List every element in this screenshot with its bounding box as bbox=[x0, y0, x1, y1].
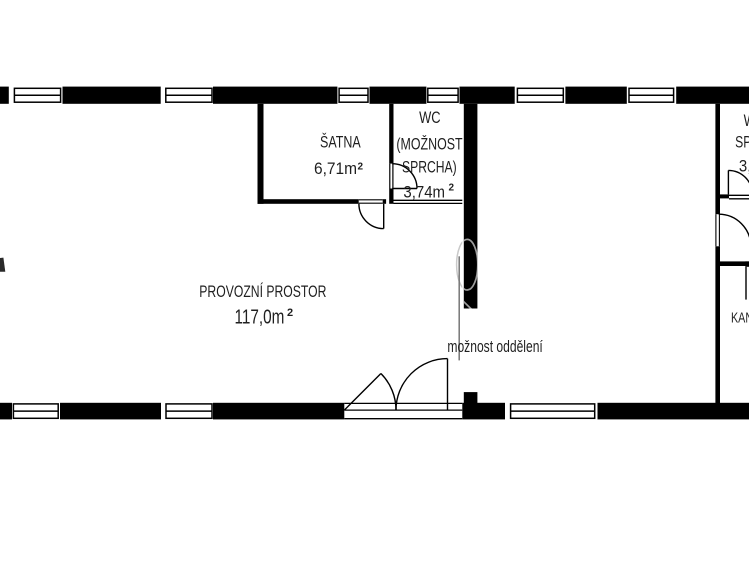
svg-text:117,0m: 117,0m bbox=[235, 305, 285, 328]
svg-text:6,71m: 6,71m bbox=[314, 160, 357, 178]
svg-text:SPRCHA): SPRCHA) bbox=[402, 157, 457, 176]
svg-text:WC: WC bbox=[744, 111, 749, 130]
svg-text:3,74m: 3,74m bbox=[403, 184, 445, 202]
svg-text:WC: WC bbox=[419, 108, 441, 127]
svg-text:PROVOZNÍ PROSTOR: PROVOZNÍ PROSTOR bbox=[199, 282, 326, 301]
svg-text:možnost oddělení: možnost oddělení bbox=[447, 337, 543, 356]
svg-text:SPRCHA: SPRCHA bbox=[735, 132, 749, 151]
svg-text:2: 2 bbox=[449, 182, 455, 193]
svg-text:KANCELÁŘ: KANCELÁŘ bbox=[731, 309, 749, 326]
svg-text:ŠATNA: ŠATNA bbox=[320, 133, 361, 152]
svg-text:(MOŽNOST: (MOŽNOST bbox=[396, 135, 462, 154]
svg-text:3,74m: 3,74m bbox=[739, 158, 749, 176]
svg-text:2: 2 bbox=[287, 307, 293, 319]
svg-text:2: 2 bbox=[358, 162, 364, 173]
